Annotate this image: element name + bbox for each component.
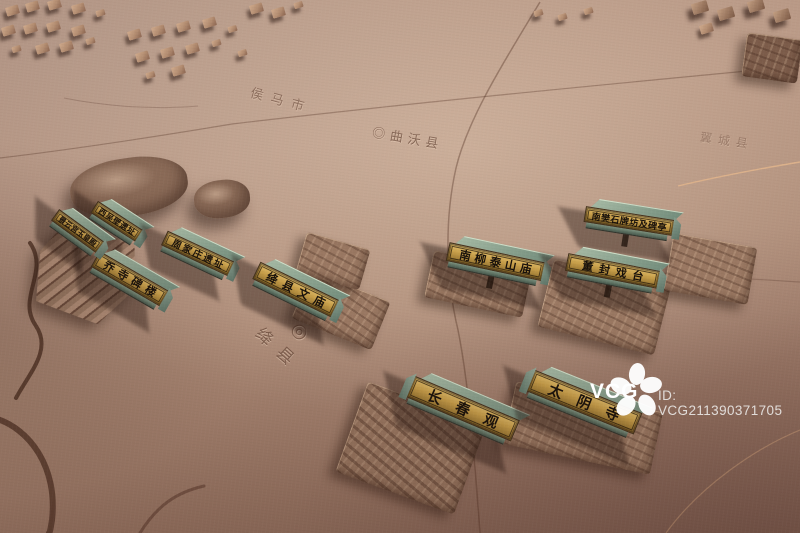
watermark-id: ID: VCG211390371705 <box>658 388 793 418</box>
river-path <box>0 418 53 533</box>
boundary-line <box>0 124 232 158</box>
boundary-line <box>232 66 800 124</box>
boundary-line <box>64 98 198 108</box>
road-line <box>666 430 800 533</box>
vcg-flower-icon <box>609 362 665 420</box>
river-path <box>140 486 204 533</box>
relief-map-photo: 侯马市 ◎曲沃县 翼城县 ◎ 绛县 景云宫玉皇殿 西吴壁遗址 周家庄遗址 乔寺碑… <box>0 0 800 533</box>
watermark: VCG ID: VCG211390371705 <box>588 361 793 417</box>
carved-complex <box>741 32 800 83</box>
road-line <box>678 162 800 186</box>
